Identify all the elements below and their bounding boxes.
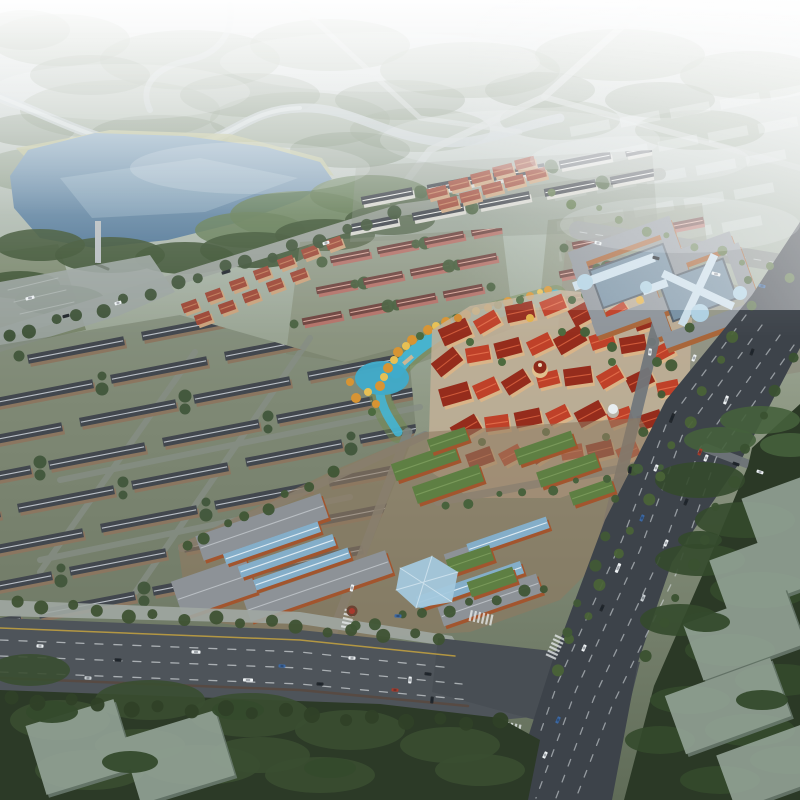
aerial-rendering [0, 0, 800, 800]
haze-right [460, 0, 800, 310]
flowerbed-roundabout [347, 606, 358, 617]
scene [0, 0, 800, 800]
scene-layers [0, 0, 800, 800]
